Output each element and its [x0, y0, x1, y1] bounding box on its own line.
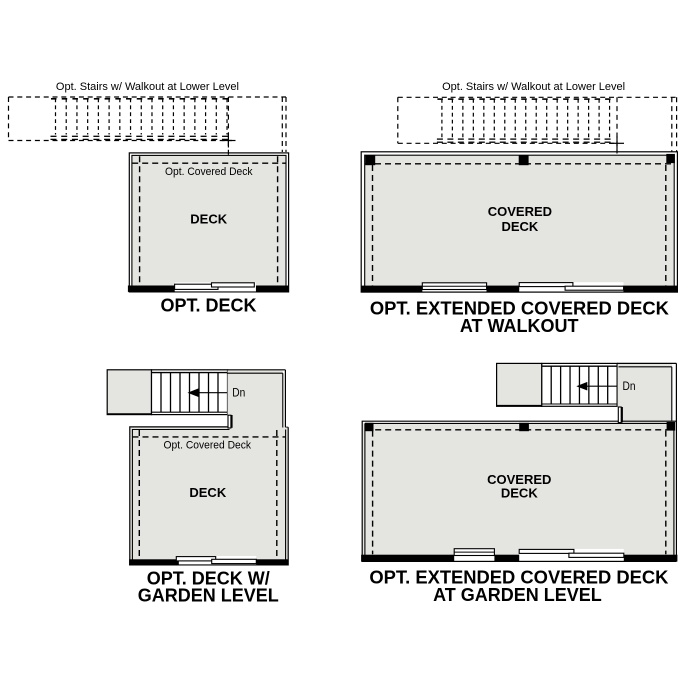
svg-text:Opt. Covered Deck: Opt. Covered Deck	[164, 440, 252, 452]
svg-text:Opt. Covered Deck: Opt. Covered Deck	[165, 166, 253, 178]
svg-text:Opt. Stairs w/ Walkout at Lowe: Opt. Stairs w/ Walkout at Lower Level	[56, 81, 239, 93]
svg-text:DECK: DECK	[190, 212, 227, 227]
svg-text:GARDEN LEVEL: GARDEN LEVEL	[138, 586, 279, 606]
svg-text:DECK: DECK	[189, 485, 226, 500]
svg-text:DECK: DECK	[501, 485, 538, 500]
svg-text:Dn: Dn	[232, 386, 245, 400]
svg-text:Opt. Stairs w/ Walkout at Lowe: Opt. Stairs w/ Walkout at Lower Level	[442, 81, 625, 93]
svg-text:AT GARDEN LEVEL: AT GARDEN LEVEL	[433, 585, 602, 605]
svg-text:OPT. DECK: OPT. DECK	[160, 296, 256, 316]
svg-text:AT WALKOUT: AT WALKOUT	[460, 316, 579, 336]
svg-text:COVERED: COVERED	[488, 204, 552, 219]
svg-text:DECK: DECK	[501, 219, 538, 234]
svg-text:Dn: Dn	[623, 379, 636, 393]
